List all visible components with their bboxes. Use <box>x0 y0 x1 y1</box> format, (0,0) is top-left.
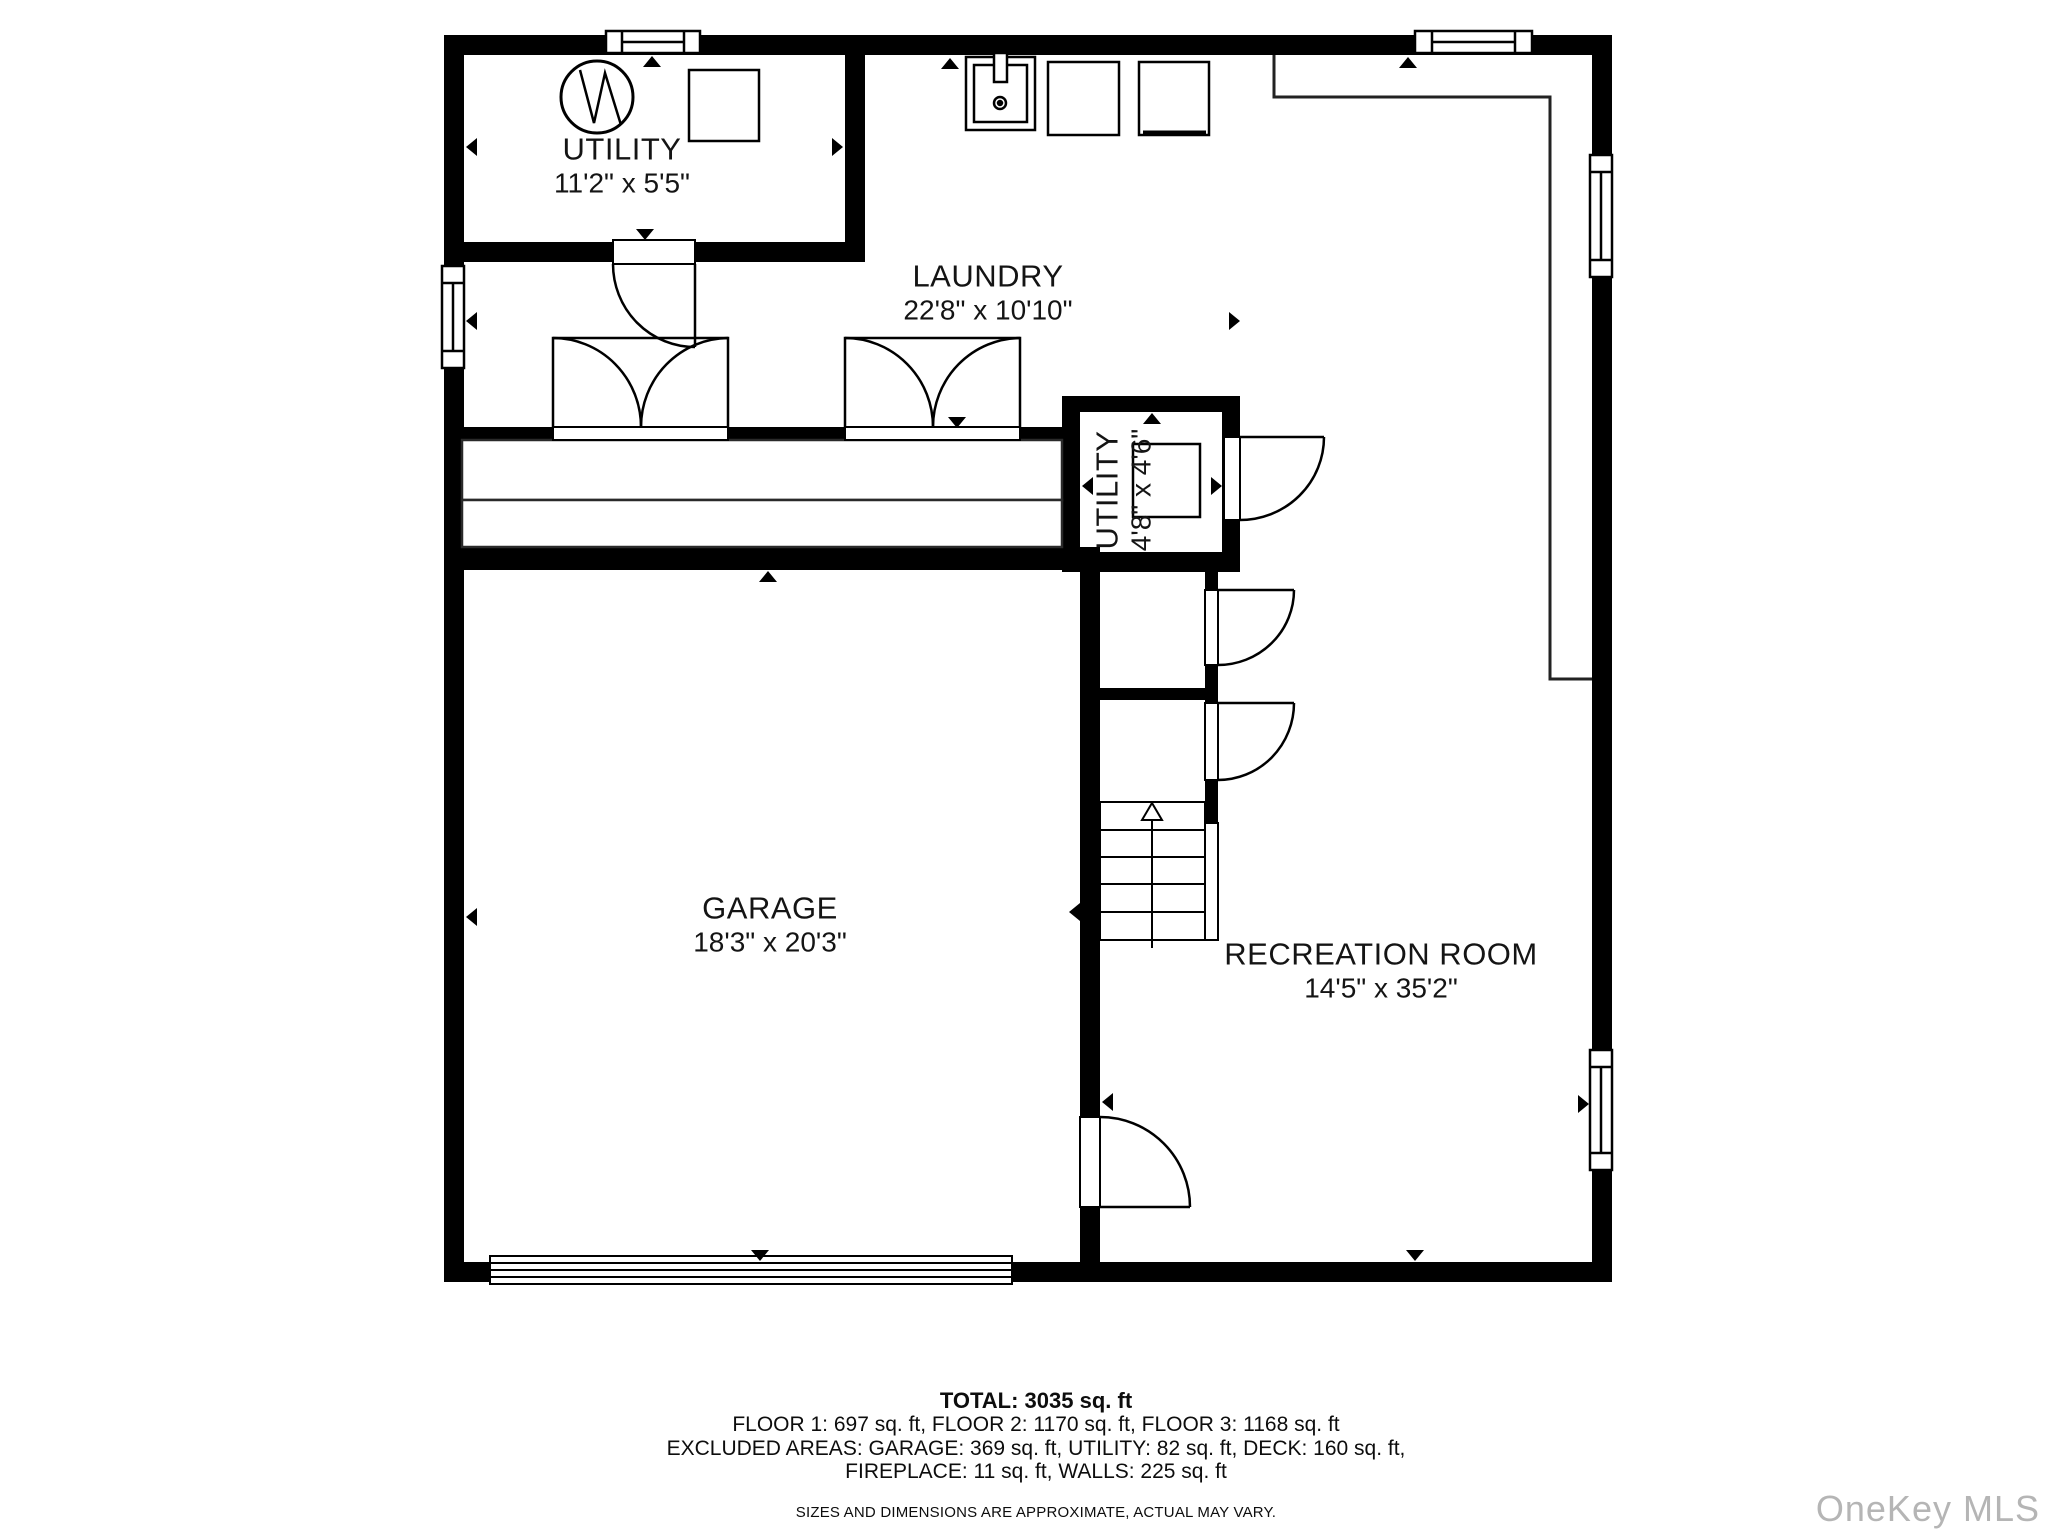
window-icon-right-wall-lower <box>1590 1050 1612 1170</box>
room-dims: 14'5" x 35'2" <box>1224 972 1538 1005</box>
onekey-mls-watermark: OneKey MLS <box>1816 1488 2040 1530</box>
window-icon-top-right <box>1415 31 1532 53</box>
area-summary: TOTAL: 3035 sq. ft FLOOR 1: 697 sq. ft, … <box>24 1389 2048 1521</box>
floorplan-drawing <box>0 0 2048 1536</box>
room-dims: 4'8" x 4'6" <box>1125 429 1158 551</box>
room-label-laundry: LAUNDRY 22'8" x 10'10" <box>903 260 1072 327</box>
counter-lines <box>1274 55 1592 679</box>
stairs-up-icon <box>1100 802 1218 948</box>
bifold-doors-icon <box>553 338 1020 427</box>
floors-area-text: FLOOR 1: 697 sq. ft, FLOOR 2: 1170 sq. f… <box>24 1413 2048 1437</box>
garage-door-icon <box>490 1256 1012 1284</box>
storage-bands <box>462 440 1062 547</box>
room-name: LAUNDRY <box>903 260 1072 294</box>
room-name: UTILITY <box>1091 431 1125 550</box>
door-utility-top <box>613 264 695 347</box>
total-area-text: TOTAL: 3035 sq. ft <box>24 1389 2048 1413</box>
door-closet-upper <box>1218 590 1294 665</box>
appliance-icon-utility-top <box>689 70 759 141</box>
room-dims: 11'2" x 5'5" <box>554 167 690 200</box>
room-name: UTILITY <box>554 133 690 167</box>
door-recreation-room <box>1100 1117 1190 1207</box>
floorplan-page: UTILITY 11'2" x 5'5" LAUNDRY 22'8" x 10'… <box>0 0 2048 1536</box>
laundry-sink-icon <box>966 53 1035 130</box>
room-label-utility-top: UTILITY 11'2" x 5'5" <box>554 133 690 200</box>
door-utility-middle <box>1240 437 1324 520</box>
washer-icon <box>1048 62 1119 135</box>
room-dims: 22'8" x 10'10" <box>903 294 1072 327</box>
window-icon-top-left <box>606 31 700 53</box>
room-dims: 18'3" x 20'3" <box>693 926 847 959</box>
window-icon-right-wall-upper <box>1590 155 1612 277</box>
door-closet-lower <box>1218 703 1294 780</box>
room-label-utility-middle: UTILITY 4'8" x 4'6" <box>1091 429 1158 551</box>
water-heater-icon <box>561 61 633 133</box>
disclaimer-text: SIZES AND DIMENSIONS ARE APPROXIMATE, AC… <box>24 1504 2048 1521</box>
room-name: GARAGE <box>693 892 847 926</box>
window-icon-left-wall <box>442 266 464 368</box>
room-name: RECREATION ROOM <box>1224 938 1538 972</box>
excluded-area-text-1: EXCLUDED AREAS: GARAGE: 369 sq. ft, UTIL… <box>24 1437 2048 1461</box>
room-label-garage: GARAGE 18'3" x 20'3" <box>693 892 847 959</box>
room-label-recreation-room: RECREATION ROOM 14'5" x 35'2" <box>1224 938 1538 1005</box>
dryer-icon <box>1139 62 1209 135</box>
excluded-area-text-2: FIREPLACE: 11 sq. ft, WALLS: 225 sq. ft <box>24 1460 2048 1484</box>
dimension-arrow-icons <box>466 56 1589 1261</box>
walls <box>444 35 1612 1282</box>
